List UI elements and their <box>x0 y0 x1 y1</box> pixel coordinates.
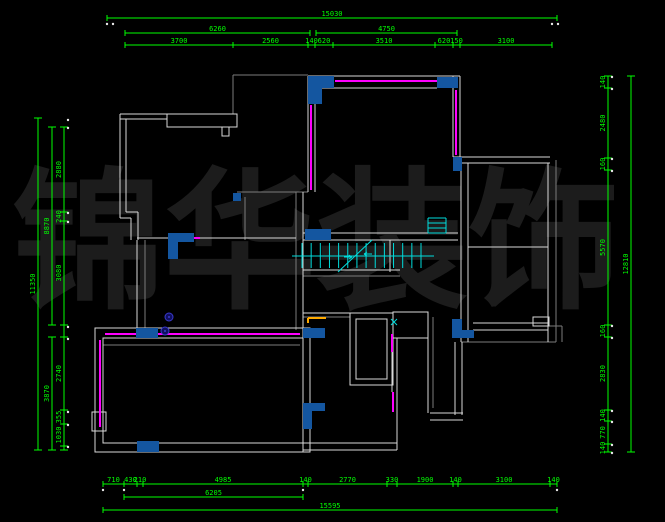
svg-text:710: 710 <box>107 476 120 484</box>
svg-text:6205: 6205 <box>205 489 222 497</box>
walls-layer <box>92 76 550 452</box>
svg-text:330: 330 <box>386 476 399 484</box>
svg-text:6260: 6260 <box>209 25 226 33</box>
svg-text:4985: 4985 <box>215 476 232 484</box>
svg-text:150: 150 <box>450 37 463 45</box>
svg-text:140: 140 <box>299 476 312 484</box>
svg-text:210: 210 <box>134 476 147 484</box>
cad-viewport: 锦华装饰 15030626047503700256014062035106201… <box>0 0 665 522</box>
svg-text:12810: 12810 <box>622 253 630 274</box>
svg-text:140: 140 <box>305 37 318 45</box>
svg-text:2480: 2480 <box>599 115 607 132</box>
svg-text:140: 140 <box>599 442 607 455</box>
svg-text:140: 140 <box>599 76 607 89</box>
svg-text:1030: 1030 <box>55 427 63 444</box>
window-blocks-layer <box>136 76 474 452</box>
svg-text:11350: 11350 <box>29 273 37 294</box>
svg-text:620: 620 <box>318 37 331 45</box>
symbol-circles-layer <box>161 313 173 335</box>
svg-text:3080: 3080 <box>55 265 63 282</box>
svg-text:160: 160 <box>599 158 607 171</box>
svg-text:3700: 3700 <box>171 37 188 45</box>
svg-text:1900: 1900 <box>417 476 434 484</box>
svg-text:770: 770 <box>599 426 607 439</box>
svg-text:140: 140 <box>547 476 560 484</box>
svg-text:140: 140 <box>449 476 462 484</box>
svg-text:160: 160 <box>599 325 607 338</box>
svg-text:3870: 3870 <box>43 385 51 402</box>
svg-text:3510: 3510 <box>376 37 393 45</box>
svg-text:140: 140 <box>599 409 607 422</box>
svg-text:5570: 5570 <box>599 239 607 256</box>
floor-plan-drawing: 1503062604750370025601406203510620150310… <box>0 0 665 522</box>
svg-text:4750: 4750 <box>378 25 395 33</box>
svg-text:15595: 15595 <box>319 502 340 510</box>
svg-text:15030: 15030 <box>321 10 342 18</box>
orange-marks-layer <box>308 318 326 323</box>
svg-text:2560: 2560 <box>262 37 279 45</box>
svg-text:2740: 2740 <box>55 365 63 382</box>
svg-text:8870: 8870 <box>43 218 51 235</box>
svg-text:3100: 3100 <box>496 476 513 484</box>
svg-text:2770: 2770 <box>339 476 356 484</box>
svg-text:620: 620 <box>438 37 451 45</box>
extension-dots-layer <box>67 23 613 491</box>
svg-text:355: 355 <box>55 411 63 424</box>
svg-text:2880: 2880 <box>55 161 63 178</box>
svg-text:3100: 3100 <box>498 37 515 45</box>
svg-text:2830: 2830 <box>599 365 607 382</box>
